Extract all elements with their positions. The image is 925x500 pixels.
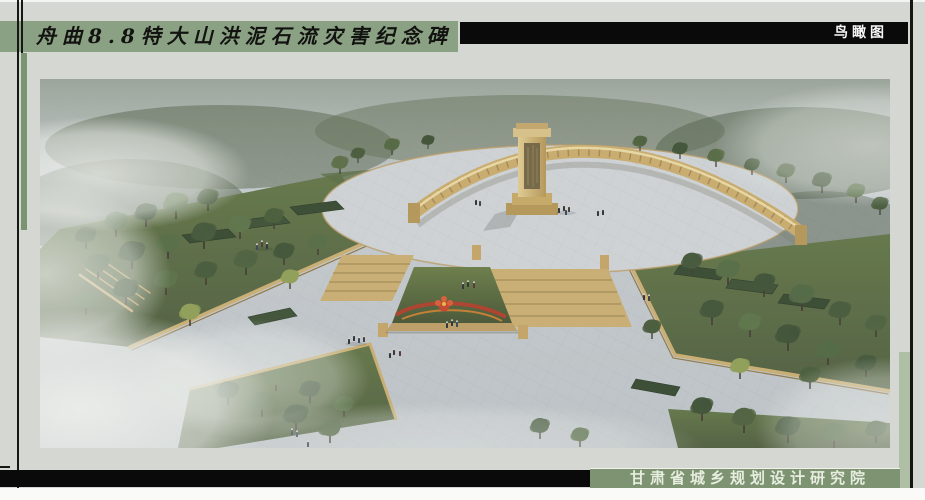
top-edge-line (0, 0, 925, 2)
fog (40, 79, 890, 448)
right-green-strip (899, 352, 910, 488)
bottom-left-notch (0, 466, 10, 468)
institute-name: 甘肃省城乡规划设计研究院 (590, 469, 900, 488)
left-green-strip (21, 53, 27, 230)
right-vertical-rule (910, 0, 913, 500)
presentation-board: 舟曲8.8特大山洪泥石流灾害纪念碑 鸟瞰图 (0, 0, 925, 500)
page-title: 舟曲8.8特大山洪泥石流灾害纪念碑 (0, 21, 458, 52)
left-vertical-rule-short (21, 0, 23, 57)
bottom-edge-strip (0, 488, 925, 500)
left-vertical-rule (17, 0, 19, 500)
view-label-band: 鸟瞰图 (460, 22, 908, 44)
bottom-black-band (0, 470, 590, 487)
institute-band: 甘肃省城乡规划设计研究院 (590, 468, 900, 488)
aerial-render (40, 79, 890, 448)
title-banner: 舟曲8.8特大山洪泥石流灾害纪念碑 (0, 21, 458, 52)
memorial-plaza-scene (40, 79, 890, 448)
view-label: 鸟瞰图 (460, 22, 908, 44)
